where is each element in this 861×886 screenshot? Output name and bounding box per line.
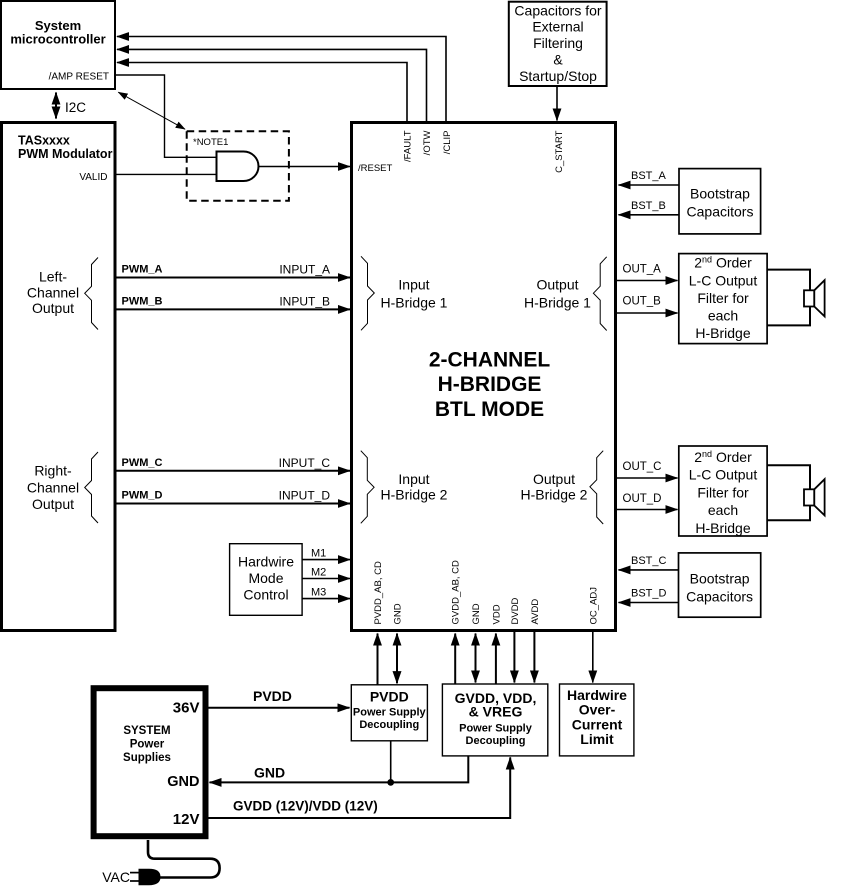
svg-text:& VREG: & VREG [469,704,523,720]
svg-text:Capacitors for: Capacitors for [514,2,601,18]
svg-text:Channel: Channel [27,285,79,301]
svg-text:VAC: VAC [102,869,130,885]
svg-text:BST_C: BST_C [631,555,667,567]
svg-text:PWM_D: PWM_D [122,490,163,502]
svg-text:Input: Input [398,277,429,293]
svg-text:PVDD: PVDD [253,688,292,704]
svg-text:/RESET: /RESET [358,163,393,174]
svg-text:AVDD: AVDD [530,599,541,625]
svg-text:Left-: Left- [39,269,67,285]
svg-text:C_START: C_START [554,130,565,173]
svg-text:TASxxxx: TASxxxx [18,134,70,148]
svg-text:M3: M3 [311,587,326,599]
svg-text:Capacitors: Capacitors [687,203,754,219]
svg-text:BST_D: BST_D [631,588,667,600]
svg-text:2-CHANNEL: 2-CHANNEL [429,348,551,371]
svg-text:/FAULT: /FAULT [403,130,414,162]
svg-text:GND: GND [167,774,199,790]
svg-text:Output: Output [32,496,74,512]
svg-text:H-BRIDGE: H-BRIDGE [438,373,542,396]
svg-text:Output: Output [536,277,578,293]
svg-text:H-Bridge 1: H-Bridge 1 [524,295,591,311]
svg-text:microcontroller: microcontroller [10,32,105,47]
svg-text:Bootstrap: Bootstrap [690,571,750,587]
svg-text:GND: GND [254,765,285,781]
svg-text:BST_A: BST_A [631,170,667,182]
svg-text:GVDD_AB, CD: GVDD_AB, CD [451,560,462,625]
svg-text:/OTW: /OTW [422,130,433,155]
svg-text:Right-: Right- [34,463,72,479]
svg-text:H-Bridge 2: H-Bridge 2 [521,486,588,502]
svg-text:VDD: VDD [491,604,502,624]
svg-text:Control: Control [243,587,288,603]
svg-text:I2C: I2C [65,100,86,115]
svg-text:&: & [553,51,563,67]
svg-text:/CLIP: /CLIP [442,131,453,155]
svg-text:12V: 12V [173,811,200,828]
svg-text:INPUT_D: INPUT_D [279,489,331,503]
svg-text:Over-: Over- [579,702,616,718]
svg-text:*NOTE1: *NOTE1 [193,137,228,148]
svg-text:INPUT_B: INPUT_B [279,294,330,308]
svg-text:H-Bridge 1: H-Bridge 1 [381,295,448,311]
svg-text:Channel: Channel [27,480,79,496]
svg-text:OC_ADJ: OC_ADJ [588,587,599,625]
svg-text:Decoupling: Decoupling [466,735,526,747]
svg-text:External: External [532,19,583,35]
svg-text:each: each [708,308,738,324]
svg-text:GVDD (12V)/VDD (12V): GVDD (12V)/VDD (12V) [233,799,378,814]
svg-text:Capacitors: Capacitors [686,589,753,605]
svg-text:PWM_A: PWM_A [122,264,163,276]
svg-text:OUT_D: OUT_D [623,493,662,505]
svg-text:Current: Current [572,716,623,732]
svg-text:OUT_A: OUT_A [623,264,662,276]
svg-text:Output: Output [533,471,575,487]
svg-text:M1: M1 [311,548,326,560]
svg-text:H-Bridge 2: H-Bridge 2 [381,486,448,502]
svg-text:PVDD_AB, CD: PVDD_AB, CD [373,561,384,624]
svg-text:BST_B: BST_B [631,200,666,212]
svg-text:Bootstrap: Bootstrap [690,185,750,201]
svg-text:L-C Output: L-C Output [689,467,758,483]
svg-text:Limit: Limit [580,731,614,747]
svg-text:H-Bridge: H-Bridge [695,520,750,536]
svg-text:Power Supply: Power Supply [459,723,533,735]
svg-text:OUT_B: OUT_B [623,296,662,308]
svg-text:H-Bridge: H-Bridge [695,325,750,341]
svg-text:INPUT_A: INPUT_A [279,263,330,277]
svg-text:L-C Output: L-C Output [689,272,758,288]
svg-text:Input: Input [398,471,429,487]
svg-text:BTL MODE: BTL MODE [435,398,544,421]
svg-text:OUT_C: OUT_C [623,461,662,473]
svg-text:36V: 36V [173,700,200,717]
svg-text:PWM Modulator: PWM Modulator [18,147,113,161]
svg-text:GND: GND [393,603,404,624]
svg-text:Decoupling: Decoupling [359,719,419,731]
svg-text:INPUT_C: INPUT_C [279,456,331,470]
svg-text:Supplies: Supplies [123,752,171,764]
svg-text:M2: M2 [311,567,326,579]
svg-text:SYSTEM: SYSTEM [123,725,170,737]
svg-text:PVDD: PVDD [370,689,409,705]
svg-text:Power: Power [130,739,165,751]
svg-text:Power Supply: Power Supply [353,707,427,719]
svg-text:Startup/Stop: Startup/Stop [519,68,597,84]
svg-text:/AMP RESET: /AMP RESET [49,72,109,83]
svg-text:Filtering: Filtering [533,35,583,51]
svg-text:DVDD: DVDD [510,597,521,624]
svg-text:PWM_C: PWM_C [122,457,163,469]
svg-text:VALID: VALID [79,172,107,183]
svg-text:each: each [708,502,738,518]
svg-text:Filter for: Filter for [697,484,749,500]
svg-text:GND: GND [471,603,482,624]
svg-text:Hardwire: Hardwire [238,554,294,570]
svg-text:Hardwire: Hardwire [567,687,627,703]
svg-text:PWM_B: PWM_B [122,295,163,307]
svg-text:Filter for: Filter for [697,290,749,306]
svg-text:Mode: Mode [248,570,283,586]
svg-text:Output: Output [32,300,74,316]
